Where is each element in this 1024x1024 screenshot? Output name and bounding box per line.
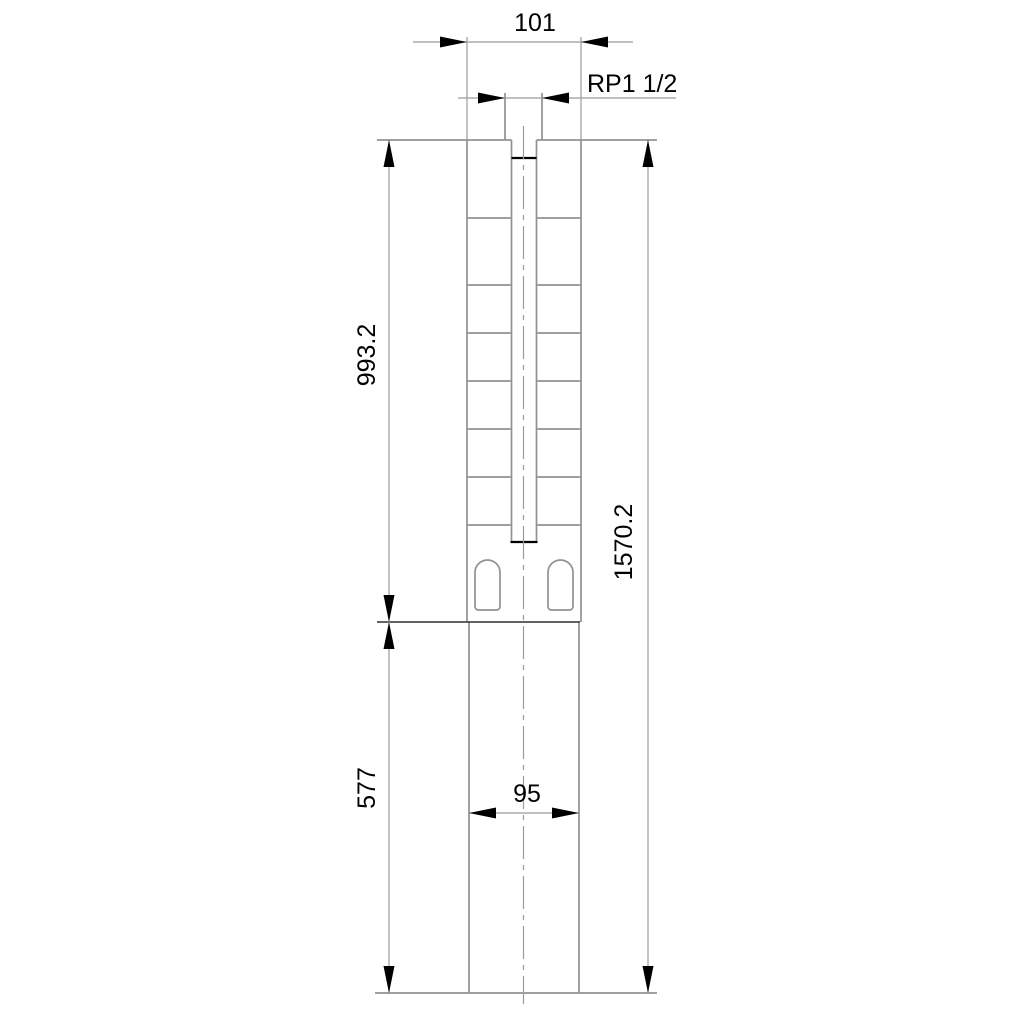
- arrow-down-icon: [384, 595, 395, 622]
- suction-slot-right: [548, 560, 573, 610]
- arrow-left-icon: [581, 37, 608, 48]
- arrow-right-icon: [552, 808, 579, 819]
- arrow-left-icon: [542, 93, 569, 104]
- dim-label-thread-connection: RP1 1/2: [587, 70, 677, 98]
- dimension-labels-group: 101 RP1 1/2 993.2 577 1570.2 95: [353, 9, 677, 809]
- dim-label-top-width: 101: [514, 9, 556, 37]
- arrow-right-icon: [440, 37, 467, 48]
- dim-label-upper-section-length: 993.2: [353, 324, 381, 387]
- dim-label-total-length: 1570.2: [610, 504, 638, 580]
- dim-label-lower-section-length: 577: [353, 767, 381, 809]
- arrow-down-icon: [384, 966, 395, 993]
- arrow-left-icon: [469, 808, 496, 819]
- suction-slot-left: [475, 560, 500, 610]
- arrow-up-icon: [384, 622, 395, 649]
- arrow-right-icon: [478, 93, 505, 104]
- dim-label-lower-width: 95: [513, 780, 541, 808]
- arrow-up-icon: [384, 140, 395, 167]
- technical-drawing-canvas: 101 RP1 1/2 993.2 577 1570.2 95: [0, 0, 1024, 1024]
- arrow-up-icon: [643, 140, 654, 167]
- arrow-down-icon: [643, 966, 654, 993]
